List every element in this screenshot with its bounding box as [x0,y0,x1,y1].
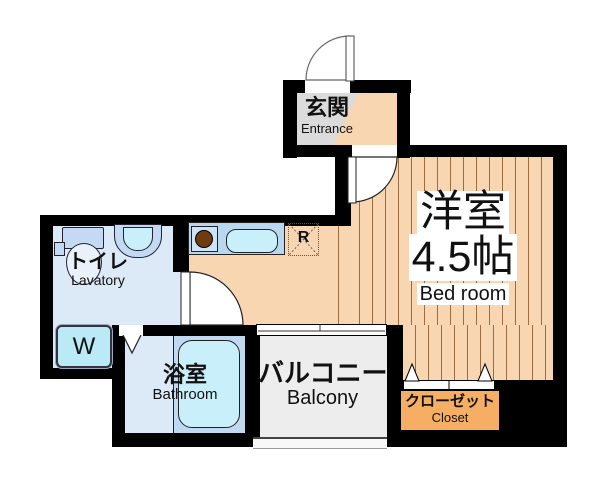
wall-below-entrance [335,150,351,226]
balcony-rail-outer [253,448,387,449]
balcony-label-ja: バルコニー [258,360,387,387]
entrance-label-en: Entrance [287,122,367,136]
wall-bedroom-top [397,145,567,157]
bathroom-door-opening [119,325,143,336]
stove-burner-icon [195,230,213,248]
bedroom-label-en: Bed room [417,283,510,305]
wall-outer-left [40,215,53,378]
wall-entrance-bottom [283,145,355,157]
closet-label-en: Closet [400,411,500,425]
floor-plan: 玄関 Entrance 洋室 4.5帖 Bed room トイレ Lavator… [0,0,616,480]
entrance-door-opening [305,80,350,93]
closet-door-sill [403,380,495,390]
wall-bathroom-bottom [112,433,260,447]
bedroom-floor-lower [403,325,553,380]
refrigerator-label: R [288,230,319,247]
bedroom-label-ja: 洋室 [417,191,509,234]
washer-label: W [56,334,112,359]
balcony-sliding-door [256,324,387,336]
kitchen-sink [226,229,278,253]
entrance-door-arc [306,36,350,80]
entrance-label-ja: 玄関 [293,96,361,119]
lavatory-label-en: Lavatory [52,273,144,288]
balcony-rail-strip [253,439,387,448]
closet-label-ja: クローゼット [400,394,500,410]
entrance-door-leaf [346,36,354,81]
wall-bathroom-left [112,325,125,447]
wall-lavatory-right [173,215,189,272]
lavatory-label-ja: トイレ [56,252,140,273]
bedroom-door-opening [352,145,397,157]
balcony-label-en: Balcony [258,388,387,409]
bathroom-label-en: Bathroom [125,387,245,403]
bedroom-label-size: 4.5帖 [409,234,518,281]
bathroom-label-ja: 浴室 [125,363,245,386]
bedroom-label-block: 洋室 4.5帖 Bed room [400,191,526,305]
